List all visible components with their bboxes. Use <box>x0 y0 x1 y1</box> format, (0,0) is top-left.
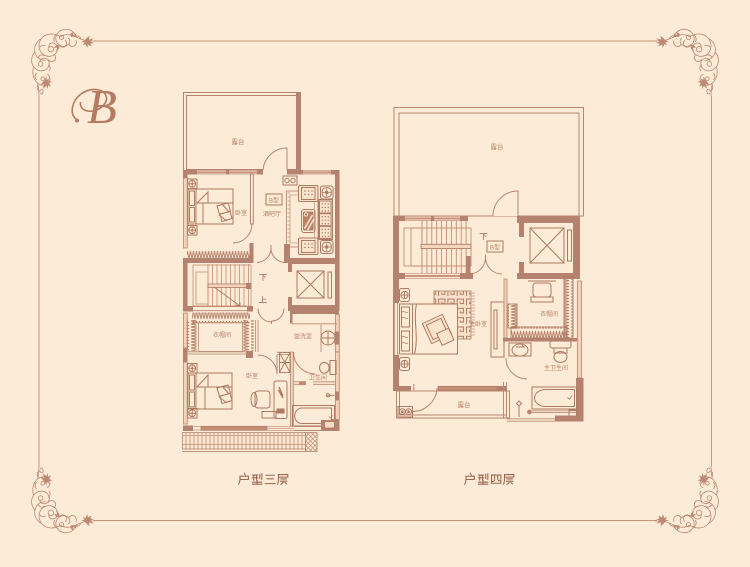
svg-text:主卧室: 主卧室 <box>469 320 487 328</box>
svg-text:卧室: 卧室 <box>235 209 247 217</box>
svg-text:酒吧厅: 酒吧厅 <box>263 210 281 218</box>
svg-text:盥洗室: 盥洗室 <box>294 333 312 341</box>
svg-text:露台: 露台 <box>458 400 471 409</box>
svg-text:衣帽间: 衣帽间 <box>213 331 231 339</box>
svg-text:B: B <box>87 79 117 134</box>
svg-text:衣帽间: 衣帽间 <box>540 310 558 318</box>
svg-text:卫生间: 卫生间 <box>309 374 327 382</box>
svg-text:露台: 露台 <box>232 137 245 146</box>
svg-text:露台: 露台 <box>491 142 504 151</box>
svg-text:B型: B型 <box>490 244 500 252</box>
svg-text:主卫生间: 主卫生间 <box>544 364 568 372</box>
svg-text:卧室: 卧室 <box>246 372 258 380</box>
svg-text:B型: B型 <box>269 197 279 205</box>
